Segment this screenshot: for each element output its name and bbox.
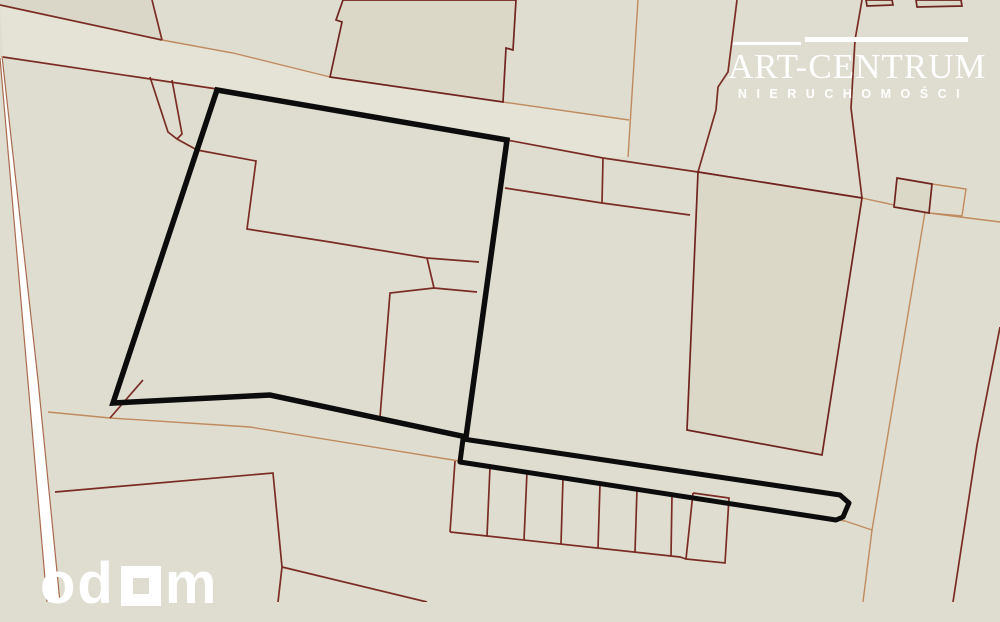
- portal-watermark: od m: [40, 552, 218, 622]
- garage-divider-6: [671, 495, 672, 556]
- garage-divider-5: [635, 489, 637, 552]
- house-parcel-stub-b: [434, 288, 477, 292]
- funnel-right: [172, 80, 182, 139]
- portal-text-prefix: od: [40, 552, 115, 616]
- agency-logo-roof-icon: [728, 34, 973, 48]
- highlighted-strip-outline: [460, 439, 849, 520]
- garage-bottom-edge: [450, 532, 686, 559]
- portal-text-suffix: m: [165, 552, 219, 616]
- portal-square-o-icon: [121, 566, 161, 606]
- garage-divider-3: [561, 478, 563, 544]
- tan-square-parcel: [929, 184, 966, 216]
- cadastral-map: ART-CENTRUM NIERUCHOMOŚCI od m: [0, 0, 1000, 602]
- small-rect-divider: [602, 158, 603, 203]
- strip-end-connector: [845, 521, 872, 530]
- building-top-sliver-b: [916, 0, 962, 7]
- agency-watermark: ART-CENTRUM NIERUCHOMOŚCI: [728, 34, 973, 101]
- east-lower-boundary: [953, 327, 1000, 602]
- roof-bar-right: [805, 37, 968, 42]
- building-top-sliver-a: [866, 0, 893, 6]
- road-band-fill: [0, 5, 629, 158]
- agency-tagline: NIERUCHOMOŚCI: [728, 87, 973, 101]
- southwest-branch-b: [278, 567, 282, 602]
- garage-left-edge: [450, 461, 455, 532]
- roof-bar-left: [733, 42, 801, 45]
- agency-name: ART-CENTRUM: [728, 50, 973, 84]
- building-small-square: [894, 178, 932, 213]
- house-parcel-line: [197, 150, 434, 417]
- east-parcel-divider: [863, 212, 925, 602]
- garage-divider-4: [598, 484, 600, 548]
- white-road-edge-left: [0, 58, 47, 602]
- building-east-large: [687, 172, 862, 455]
- house-parcel-stub-a: [427, 258, 479, 262]
- garage-divider-2: [524, 472, 527, 540]
- southwest-branch-a: [282, 567, 427, 602]
- small-rect-bottom: [505, 188, 690, 215]
- highlighted-parcel-outline: [113, 90, 507, 437]
- white-road: [0, 56, 60, 602]
- north-vertical-divider: [628, 0, 638, 157]
- garage-divider-1: [487, 467, 490, 536]
